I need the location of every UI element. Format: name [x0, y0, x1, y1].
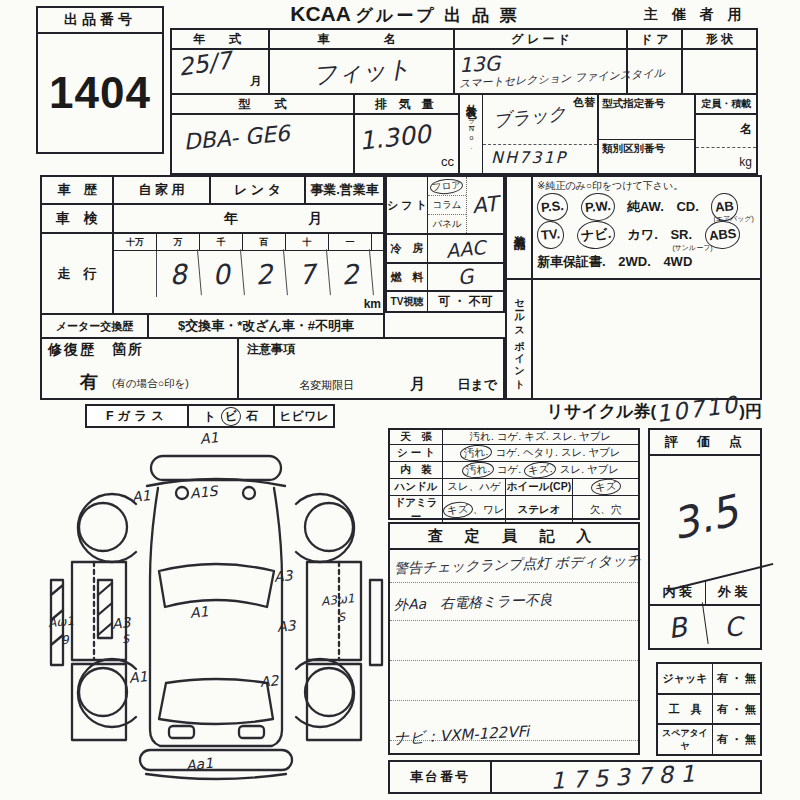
sales-point-block: セールスポイント: [505, 278, 762, 400]
glass-label: Fガラス: [85, 404, 189, 428]
cond-item: スレ.: [561, 446, 585, 460]
recycle-prefix: リサイクル券(: [547, 402, 657, 421]
odo-col-1k: 千: [200, 234, 243, 250]
inspection-label: 車 検: [42, 205, 114, 232]
repair-notes-block: 修復歴 箇所 有 (有の場合○印を) 注意事項 名変期限日 月 日まで: [40, 337, 505, 400]
mileage-label: 走 行: [42, 234, 114, 313]
interior-grade: B: [647, 602, 708, 651]
glass-crack-label: ヒビワレ: [275, 404, 335, 428]
shift-panel-option: パネル: [428, 215, 466, 233]
class-number-label: 類別区別番号: [599, 140, 694, 173]
inspector-note3: ナビ：VXM-122VFi: [394, 722, 530, 748]
color-code-value: NH731P: [491, 148, 567, 167]
cond-mirror-kizu: キズ: [443, 501, 474, 520]
equipment-4wd: 4WD: [663, 249, 692, 275]
cond-item: キズ.: [524, 430, 548, 444]
damage-mark: A1: [131, 487, 151, 505]
cond-item: ヤブレ: [579, 430, 611, 444]
recycle-value: 10710: [655, 391, 741, 427]
model-value: DBA- GE6: [170, 107, 355, 180]
cond-interior-label: 内 装: [390, 462, 443, 478]
damage-mark: A2: [260, 672, 280, 690]
cond-stereo-value: 欠、穴: [573, 496, 638, 524]
odo-digit-4: 7: [284, 249, 331, 299]
damage-mark: A1: [199, 429, 219, 447]
chassis-label: 車台番号: [390, 762, 492, 792]
tv-value: 可 ・ 不可: [428, 292, 503, 311]
glass-opt-stone-chip: ト: [204, 408, 216, 425]
cond-wheel-value: キズ: [590, 478, 621, 497]
equipment-side-label: 装備品: [511, 225, 528, 231]
name-value: フィット: [269, 44, 455, 100]
equipment-line1: P.S. P.W. 純AW. CD. AB(エアバッグ): [537, 193, 756, 221]
condition-table: 天 張 汚れ.コゲ.キズ.スレ.ヤブレ シ ー ト 汚れ.コゲ.ヘタリ.スレ.ヤ…: [388, 428, 640, 520]
history-block: 車 歴 自 家 用 レ ン タ 事業.営業車 車 検 年 月 走 行 十万 万 …: [40, 175, 385, 315]
damage-mark: S: [121, 632, 129, 646]
recycle-line: リサイクル券(10710)円: [390, 396, 762, 426]
type-number-label: 型式指定番号: [599, 95, 694, 140]
auction-sheet: 出品番号 1404 KCAA グループ 出 品 票 主 催 者 用 年 式 25…: [0, 0, 800, 800]
repair-yes-label: 有: [80, 370, 98, 394]
meter-exchange-row: メーター交換歴 $交換車・*改ざん車・#不明車: [40, 313, 385, 339]
shift-label: シ フ ト: [387, 177, 428, 233]
exterior-header: 外 装: [706, 580, 761, 604]
cond-mirror-label: ドアミラー: [390, 496, 443, 524]
glass-opt-stone: 石: [246, 408, 258, 425]
spare-tire-value: 有 ・ 無: [713, 725, 760, 754]
odo-col-10: 十: [286, 234, 329, 250]
odo-col-10k: 万: [157, 234, 200, 250]
displacement-value: 1.300: [357, 120, 431, 156]
rename-day-label: 日まで: [457, 376, 497, 394]
inspector-note1: 警告チェックランプ点灯 ボディタッチ: [394, 552, 641, 579]
equipment-line3: 新車保証書. 2WD. 4WD: [537, 249, 756, 275]
color-label: 外装色: [464, 95, 479, 101]
damage-mark: A3: [276, 617, 296, 635]
glass-opt-bi: ビ: [220, 406, 242, 427]
lot-number-label: 出品番号: [38, 8, 162, 34]
equipment-cd: CD.: [676, 194, 698, 220]
equipment-2wd: 2WD.: [618, 249, 651, 275]
cond-item: スレ.: [552, 430, 576, 444]
year-month-label: 月: [250, 73, 262, 90]
odo-col-100: 百: [243, 234, 286, 250]
damage-mark: A1: [128, 668, 148, 686]
cond-item-circled: キズ.: [524, 461, 558, 480]
cond-item: ヤブレ: [587, 463, 619, 477]
door-header: ド ア: [628, 30, 680, 50]
equipment-aw: 純AW.: [627, 194, 664, 220]
shift-value: AT: [464, 175, 506, 234]
cond-handle-label: ハンドル: [390, 479, 443, 495]
meter-exchange-text: $交換車・*改ざん車・#不明車: [149, 315, 383, 337]
inspection-year-label: 年: [224, 210, 238, 228]
cond-item: コゲ.: [497, 430, 521, 444]
equipment-block: 装備品 ※純正のみ○印をつけて下さい。 P.S. P.W. 純AW. CD. A…: [505, 175, 762, 280]
displacement-unit: cc: [441, 154, 454, 169]
damage-mark: A1: [189, 603, 209, 621]
repair-label: 修復歴 箇所: [48, 341, 144, 359]
rename-month-label: 月: [410, 375, 425, 394]
history-label: 車 歴: [42, 177, 114, 203]
shape-header: 形 状: [683, 30, 756, 50]
car-diagram: A1 A1S A1 A1 A3 S Aω1 9 A3 A3 A3ω1 S A2 …: [48, 430, 385, 792]
meter-exchange-label: メーター交換歴: [42, 315, 149, 337]
shape-value-empty: [683, 50, 756, 93]
equipment-pw: P.W.: [579, 192, 615, 223]
displacement-header: 排 気 量: [355, 95, 458, 115]
chassis-row: 車台番号 1753781: [388, 760, 762, 794]
equipment-leather: カワ.: [628, 222, 658, 248]
jack-label: ジャッキ: [658, 664, 713, 693]
sales-point-label: セールスポイント: [512, 291, 526, 387]
odo-digit-0: [114, 251, 157, 297]
capacity-header: 定員・積載: [696, 95, 756, 115]
cond-item: コゲ.: [497, 463, 521, 477]
equipment-abs: ABS: [704, 220, 742, 251]
fuel-label: 燃 料: [387, 264, 428, 290]
cond-item: スレ.: [560, 463, 584, 477]
odo-col-1: 一: [329, 234, 372, 250]
tv-label: TV視聴: [387, 292, 428, 311]
capacity-persons-label: 名: [740, 121, 752, 138]
vehicle-table: 年 式 25/7 月 車 名 フィット グ レ ー ド 13G スマートセレクシ…: [170, 28, 758, 175]
sales-point-empty: [533, 280, 760, 398]
cond-handle-value: スレ、ハゲ: [443, 479, 506, 495]
odo-digit-3: 2: [241, 249, 288, 299]
tools-value: 有 ・ 無: [713, 695, 760, 724]
cond-item: ヤブレ: [588, 446, 620, 460]
lot-number-value: 1404: [38, 34, 162, 152]
score-value: 3.5: [637, 445, 774, 592]
recycle-suffix: )円: [739, 402, 762, 421]
glass-row: Fガラス ト ビ 石 ヒビワレ: [85, 404, 335, 428]
odo-digit-2: 0: [198, 249, 245, 299]
color-change-label: 色替: [573, 95, 595, 110]
year-value: 25/7: [176, 46, 233, 81]
spare-tire-label: スペアタイヤ: [658, 725, 713, 754]
damage-mark: A1S: [189, 483, 218, 502]
rename-deadline-label: 名変期限日: [299, 378, 354, 393]
title-text: グループ 出 品 票: [355, 6, 519, 25]
odo-digit-5: 2: [327, 249, 374, 299]
history-rental: レ ン タ: [211, 177, 306, 203]
cond-seat-label: シ ー ト: [390, 445, 443, 461]
exterior-grade: C: [704, 604, 762, 651]
cond-item: 汚れ.: [470, 430, 494, 444]
capacity-weight-label: kg: [739, 155, 752, 169]
brand-logo: KCAA: [290, 2, 351, 25]
inspector-box: 査 定 員 記 入 警告チェックランプ点灯 ボディタッチ 外Aa 右電格ミラー不…: [388, 522, 640, 755]
shift-floor-option: フロア: [430, 177, 464, 195]
damage-mark: A3: [111, 614, 131, 632]
inspection-month-label: 月: [308, 210, 322, 228]
chassis-value: 1753781: [491, 755, 760, 799]
repair-yes-note: (有の場合○印を): [112, 377, 189, 391]
equipment-tv: TV.: [536, 220, 565, 250]
shift-block: シ フ ト フロア コラム パネル AT 冷 房 AAC 燃 料 G TV視聴 …: [385, 175, 505, 313]
score-box: 評 価 点 3.5 内 装 外 装 B C: [648, 428, 762, 650]
damage-mark: 9: [61, 632, 70, 647]
damage-mark: A3: [273, 567, 293, 585]
equipment-note: ※純正のみ○印をつけて下さい。: [537, 179, 756, 193]
equipment-ps: P.S.: [536, 192, 569, 223]
cond-item: ヘタリ.: [523, 446, 558, 460]
history-private: 自 家 用: [114, 177, 211, 203]
cond-item: コゲ.: [495, 446, 519, 460]
cond-item-circled: 汚れ.: [461, 461, 494, 480]
accessories-box: ジャッキ 有 ・ 無 工 具 有 ・ 無 スペアタイヤ 有 ・ 無: [656, 662, 762, 756]
damage-mark: Aa1: [185, 754, 214, 773]
jack-value: 有 ・ 無: [713, 664, 760, 693]
notes-label: 注意事項: [247, 341, 295, 358]
odo-unit-label: km: [364, 297, 381, 311]
cond-item-circled: 汚れ.: [460, 444, 493, 463]
tools-label: 工 具: [658, 695, 713, 724]
audience-label: 主 催 者 用: [644, 6, 747, 24]
shift-column-option: コラム: [428, 196, 466, 215]
lot-number-box: 出品番号 1404: [36, 6, 164, 154]
inspector-note2: 外Aa 右電格ミラー不良: [394, 591, 553, 615]
odo-digit-1: 8: [155, 249, 202, 299]
cond-ceiling-label: 天 張: [390, 430, 443, 444]
color-value: ブラック: [492, 101, 568, 133]
equipment-line2: TV. ナビ. カワ. SR.(サンルーフ) ABS: [537, 221, 756, 249]
sheet-title: KCAA グループ 出 品 票: [255, 2, 555, 26]
cond-wheel-label: ホイール(CP): [506, 479, 573, 495]
damage-mark: Aω1: [47, 613, 74, 630]
inspector-header: 査 定 員 記 入: [390, 524, 638, 550]
damage-mark: S: [337, 611, 345, 625]
equipment-warranty: 新車保証書.: [537, 249, 606, 275]
color-no-label: カラーNo.: [466, 103, 476, 152]
ac-label: 冷 房: [387, 235, 428, 262]
odo-col-100k: 十万: [114, 234, 157, 250]
equipment-navi: ナビ.: [576, 219, 617, 250]
cond-stereo-label: ステレオ: [506, 496, 573, 524]
cond-mirror-ware: 、ワレ: [473, 503, 505, 517]
history-business: 事業.営業車: [306, 177, 383, 203]
